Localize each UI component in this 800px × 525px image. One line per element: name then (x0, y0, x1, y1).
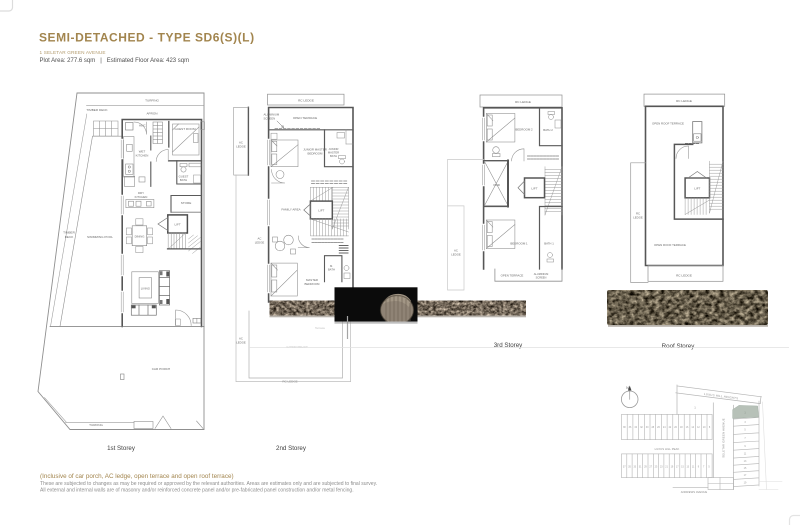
svg-text:BEDROOM: BEDROOM (308, 151, 324, 155)
svg-text:OPEN TERRACE: OPEN TERRACE (293, 116, 317, 120)
svg-text:BATH 2: BATH 2 (543, 128, 553, 132)
svg-text:STORE: STORE (181, 201, 192, 205)
svg-text:BATH: BATH (328, 268, 335, 272)
svg-text:TIMBER: TIMBER (63, 231, 75, 235)
svg-text:LEDGE: LEDGE (236, 340, 246, 344)
svg-text:ANDREWS AVENUE: ANDREWS AVENUE (681, 490, 708, 494)
svg-text:DINING: DINING (135, 234, 145, 238)
svg-text:GARDEN BELOW: GARDEN BELOW (286, 345, 308, 349)
svg-text:LIFT: LIFT (318, 209, 324, 213)
svg-text:SWIMMING POOL: SWIMMING POOL (87, 235, 113, 239)
svg-text:TURFING: TURFING (145, 99, 159, 103)
svg-text:LEDGE: LEDGE (255, 240, 265, 244)
svg-text:OPEN ROOF TERRACE: OPEN ROOF TERRACE (654, 243, 686, 247)
svg-text:KITCHEN: KITCHEN (136, 153, 149, 157)
svg-text:Plot Area: 277.6 sqm | Est: Plot Area: 277.6 sqm | Estimated Floor A… (40, 58, 190, 64)
svg-text:KITCHEN: KITCHEN (135, 195, 148, 199)
svg-text:VOID: VOID (493, 183, 500, 187)
svg-text:Roof Storey: Roof Storey (662, 343, 696, 350)
svg-text:LEDGE: LEDGE (236, 144, 246, 148)
svg-text:JUNIOR: JUNIOR (328, 147, 338, 151)
svg-text:LIVING: LIVING (141, 286, 150, 290)
svg-text:RC LEDGE: RC LEDGE (515, 100, 531, 104)
svg-text:M.: M. (330, 264, 333, 268)
svg-text:Terrace: Terrace (315, 326, 325, 330)
svg-text:OPEN TERRACE: OPEN TERRACE (501, 274, 524, 278)
svg-text:DECK: DECK (65, 235, 75, 239)
svg-text:RC LEDGE: RC LEDGE (282, 380, 297, 384)
svg-text:These are subjected to changes: These are subjected to changes as may be… (40, 481, 377, 487)
svg-text:1st Storey: 1st Storey (107, 445, 136, 452)
svg-text:BATH: BATH (330, 154, 337, 158)
svg-text:FAMILY AREA: FAMILY AREA (281, 208, 300, 212)
svg-text:ALUMINIUM: ALUMINIUM (534, 272, 549, 276)
svg-text:SCREEN: SCREEN (536, 275, 547, 279)
svg-text:SELETAR GREEN AVENUE: SELETAR GREEN AVENUE (722, 418, 726, 458)
svg-text:BATH 1: BATH 1 (544, 242, 554, 246)
svg-text:LIFT: LIFT (531, 186, 537, 190)
svg-text:APRON: APRON (146, 112, 157, 116)
svg-text:BATH: BATH (180, 178, 187, 182)
svg-text:2nd Storey: 2nd Storey (276, 445, 307, 452)
svg-text:LEDGE: LEDGE (633, 215, 643, 219)
svg-text:LIFT: LIFT (175, 222, 181, 226)
svg-text:1 SELETAR GREEN AVENUE: 1 SELETAR GREEN AVENUE (40, 50, 106, 55)
svg-text:3rd Storey: 3rd Storey (494, 342, 523, 349)
svg-text:LIFT: LIFT (694, 187, 700, 191)
svg-text:RC LEDGE: RC LEDGE (676, 274, 692, 278)
svg-text:BEDROOM 1: BEDROOM 1 (510, 242, 528, 246)
svg-text:TIMBER DECK: TIMBER DECK (86, 108, 108, 112)
svg-text:BEDROOM 2: BEDROOM 2 (515, 128, 533, 132)
svg-text:SCREEN: SCREEN (264, 116, 276, 120)
svg-text:RC LEDGE: RC LEDGE (676, 99, 692, 103)
svg-text:TURFING: TURFING (89, 423, 103, 427)
svg-text:All external and internal wall: All external and internal walls are of m… (40, 488, 354, 494)
svg-text:OPEN ROOF TERRACE: OPEN ROOF TERRACE (652, 122, 684, 126)
svg-text:SEMI-DETACHED - TYPE SD6(S)(L): SEMI-DETACHED - TYPE SD6(S)(L) (39, 31, 255, 45)
svg-text:LEDGE: LEDGE (451, 252, 461, 256)
svg-text:MASTER: MASTER (328, 151, 339, 155)
svg-text:(Inclusive of car porch, AC le: (Inclusive of car porch, AC ledge, open … (40, 473, 234, 480)
svg-text:CAR PORCH: CAR PORCH (152, 367, 171, 371)
svg-text:RC LEDGE: RC LEDGE (298, 98, 314, 102)
svg-text:GUEST ROOM: GUEST ROOM (174, 127, 196, 131)
svg-text:BEDROOM: BEDROOM (305, 282, 321, 286)
svg-text:LUXUS HILL PEAK: LUXUS HILL PEAK (655, 447, 680, 451)
